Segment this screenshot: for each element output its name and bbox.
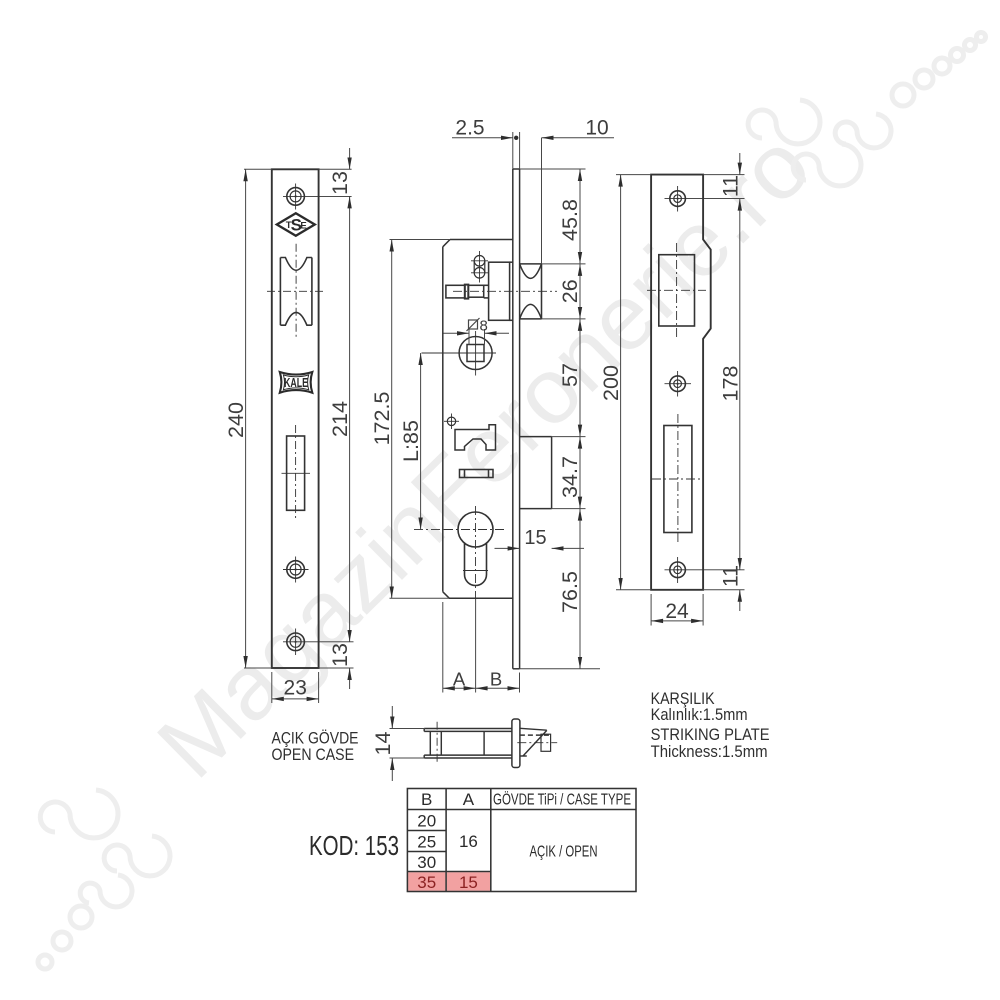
svg-text:KOD: 153: KOD: 153	[309, 830, 399, 861]
svg-text:L:85: L:85	[399, 420, 423, 462]
svg-text:MagazinFeronerie.ro: MagazinFeronerie.ro	[138, 114, 829, 797]
svg-text:214: 214	[328, 401, 352, 437]
svg-text:45.8: 45.8	[558, 199, 582, 241]
svg-text:57: 57	[558, 363, 582, 387]
svg-text:11: 11	[718, 175, 742, 197]
svg-text:240: 240	[224, 402, 248, 438]
svg-text:8: 8	[480, 318, 488, 335]
svg-text:OPEN CASE: OPEN CASE	[272, 745, 355, 764]
svg-text:30: 30	[417, 853, 436, 872]
svg-text:AÇIK / OPEN: AÇIK / OPEN	[530, 844, 598, 861]
svg-text:23: 23	[284, 677, 307, 700]
svg-text:16: 16	[459, 832, 478, 851]
svg-text:24: 24	[665, 600, 689, 623]
svg-text:Thickness:1.5mm: Thickness:1.5mm	[651, 743, 768, 761]
svg-text:B: B	[490, 669, 502, 690]
svg-text:10: 10	[585, 117, 608, 140]
svg-text:20: 20	[417, 812, 436, 831]
svg-text:15: 15	[524, 527, 546, 549]
svg-text:25: 25	[417, 833, 436, 852]
svg-text:13: 13	[328, 643, 352, 667]
svg-text:E: E	[300, 220, 306, 231]
svg-text:GÖVDE TiPi / CASE TYPE: GÖVDE TiPi / CASE TYPE	[493, 791, 631, 809]
svg-text:KALE: KALE	[284, 376, 308, 390]
svg-text:STRIKING PLATE: STRIKING PLATE	[651, 726, 770, 744]
svg-text:B: B	[421, 790, 432, 809]
svg-text:172.5: 172.5	[370, 392, 394, 446]
svg-text:14: 14	[371, 732, 395, 756]
svg-text:26: 26	[558, 279, 582, 303]
svg-text:178: 178	[718, 366, 742, 402]
svg-text:A: A	[463, 790, 475, 809]
svg-text:76.5: 76.5	[558, 571, 582, 613]
svg-text:35: 35	[417, 873, 436, 892]
svg-text:11: 11	[718, 565, 742, 587]
svg-text:A: A	[453, 669, 466, 690]
svg-text:34.7: 34.7	[558, 456, 582, 498]
svg-text:Kalınlık:1.5mm: Kalınlık:1.5mm	[651, 706, 748, 724]
svg-text:13: 13	[328, 171, 352, 195]
svg-text:200: 200	[599, 365, 623, 401]
svg-text:2.5: 2.5	[455, 117, 484, 140]
svg-text:15: 15	[459, 873, 478, 892]
